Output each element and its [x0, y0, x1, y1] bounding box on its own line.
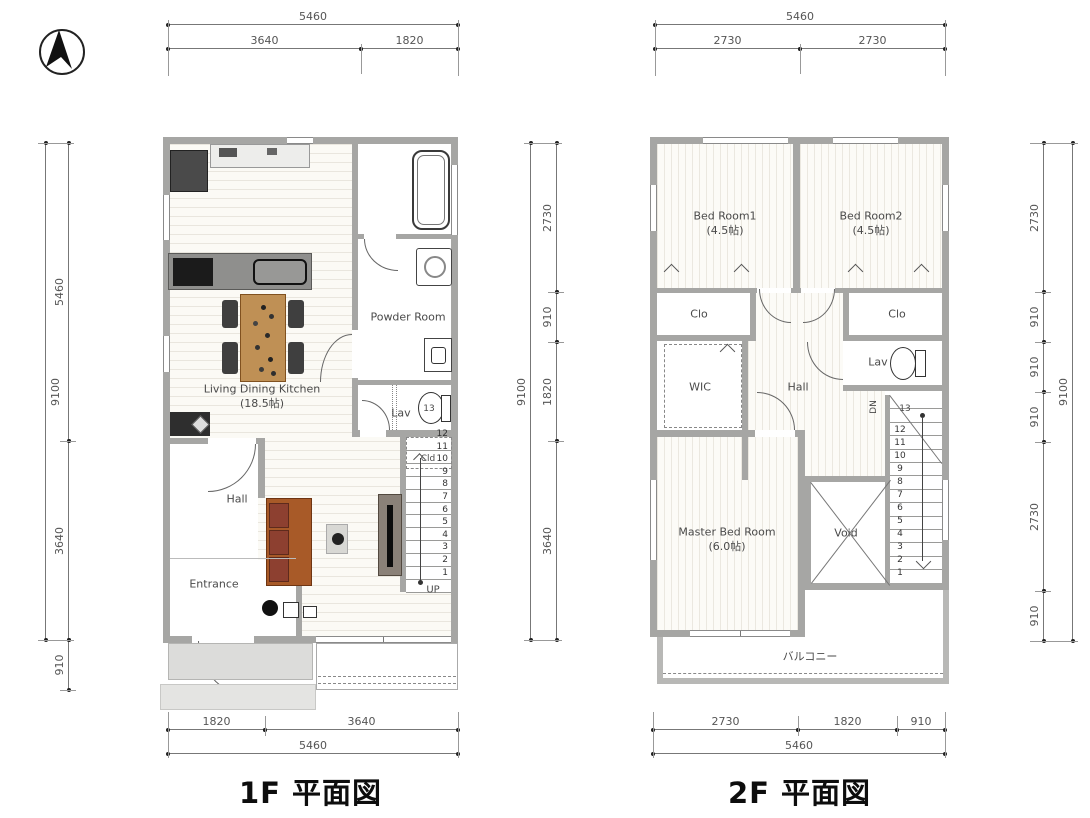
window	[833, 137, 898, 144]
dim-label: 9100	[49, 378, 62, 406]
dim-label: 5460	[786, 10, 814, 23]
shoe-box	[303, 606, 317, 618]
dim-f1-left-seg0: 5460	[68, 143, 69, 441]
stair-step-number: 7	[897, 489, 903, 502]
dim-label: 910	[911, 715, 932, 728]
dim-label: 2730	[859, 34, 887, 47]
dim-tick	[265, 716, 266, 736]
coffee-table-item	[332, 533, 344, 545]
dim-tick	[945, 712, 946, 758]
wall	[352, 380, 458, 385]
dim-tick	[168, 20, 169, 76]
wall	[805, 583, 949, 590]
dim-label: 910	[1028, 307, 1041, 328]
dining-chair	[222, 342, 238, 374]
dim-tick	[1035, 591, 1051, 592]
window	[287, 137, 313, 144]
dim-f2-right-seg3: 910	[1043, 392, 1044, 442]
window	[650, 185, 657, 231]
sofa	[266, 498, 312, 586]
stair-step-number: 3	[897, 541, 903, 554]
door-opening	[352, 330, 358, 378]
dim-tick	[38, 143, 74, 144]
window	[942, 185, 949, 231]
room-label-entrance: Entrance	[189, 578, 238, 591]
dim-f1-right-seg2: 1820	[556, 342, 557, 441]
room-label-powder: Powder Room	[370, 311, 445, 324]
kitchen-back-counter	[210, 144, 310, 168]
sliding-door-mid	[383, 637, 384, 642]
wall	[798, 437, 805, 637]
dim-f1-right-total: 9100	[530, 143, 531, 640]
dim-f1-left-seg2: 910	[68, 640, 69, 690]
room-label-master: Master Bed Room	[678, 526, 775, 539]
room-label-lav-2f: Lav	[868, 356, 887, 369]
stairs-dn-label: DN	[869, 400, 879, 414]
dim-tick	[458, 712, 459, 758]
stair-step-number: 9	[897, 463, 903, 476]
stair-step-number: 3	[442, 541, 448, 554]
dim-label: 5460	[785, 739, 813, 752]
toilet-tank	[915, 350, 926, 377]
dim-f1-right-seg0: 2730	[556, 143, 557, 292]
wall	[843, 293, 849, 341]
wall	[352, 144, 358, 434]
stair-step-number: 9	[442, 466, 448, 479]
sliding-door-mid	[740, 631, 741, 636]
dim-label: 1820	[541, 378, 554, 406]
sofa-cushion	[269, 557, 289, 582]
dim-label: 2730	[1028, 204, 1041, 232]
dim-f2-bottom-seg2: 910	[897, 729, 945, 730]
dim-f1-right-seg3: 3640	[556, 441, 557, 640]
dining-chair	[288, 300, 304, 328]
stair-step-number: 2	[442, 554, 448, 567]
dim-tick	[653, 712, 654, 758]
porch-step	[160, 684, 316, 710]
balcony-wall	[943, 590, 949, 684]
stair-direction-line	[420, 458, 421, 582]
entrance-porch	[168, 643, 313, 680]
dim-tick	[60, 690, 76, 691]
window	[650, 480, 657, 560]
closet-label: Cld	[421, 454, 436, 464]
wall	[258, 438, 265, 498]
dining-chair	[288, 342, 304, 374]
door-opening	[360, 430, 386, 437]
stair-step-number: 1	[897, 567, 903, 580]
dim-tick	[1035, 442, 1051, 443]
dim-label: 910	[1028, 407, 1041, 428]
dim-label: 910	[541, 307, 554, 328]
dim-tick	[38, 640, 74, 641]
dim-tick	[1035, 392, 1051, 393]
room-label-wic: WIC	[689, 381, 711, 394]
room-label-balcony: バルコニー	[783, 648, 838, 664]
stair-start-dot	[418, 580, 423, 585]
floor1-title: 1F 平面図	[163, 770, 458, 812]
stair-step-13: 13	[899, 404, 910, 414]
balcony-wall	[657, 678, 949, 684]
dim-label: 2730	[541, 204, 554, 232]
room-size-master: (6.0帖)	[708, 538, 745, 554]
dim-f1-left-seg1: 3640	[68, 441, 69, 640]
stair-step-numbers-1f: 121110987654321	[430, 428, 450, 579]
coffee-table	[326, 524, 348, 554]
stair-step-number: 11	[894, 437, 905, 450]
balcony-drain-line	[663, 673, 943, 674]
dim-f2-right-seg4: 2730	[1043, 442, 1044, 591]
dim-label: 910	[53, 655, 66, 676]
dim-tick	[945, 20, 946, 76]
dim-tick	[1030, 143, 1078, 144]
stair-step-13: 13	[423, 404, 434, 414]
dim-f1-bottom-seg1: 3640	[265, 729, 458, 730]
stair-step-number: 11	[437, 441, 448, 454]
window	[942, 480, 949, 540]
stair-step-number: 5	[442, 516, 448, 529]
eave-line	[318, 683, 456, 684]
tv-board	[378, 494, 402, 576]
dim-tick	[800, 44, 801, 74]
window	[163, 336, 170, 372]
dim-tick	[655, 20, 656, 76]
dim-f2-top-seg1: 2730	[800, 48, 945, 49]
wall	[843, 335, 949, 341]
floor2-title: 2F 平面図	[650, 770, 949, 812]
stair-step-number: 4	[442, 529, 448, 542]
room-size-ldk: (18.5帖)	[240, 395, 284, 411]
dim-label: 1820	[396, 34, 424, 47]
wall	[742, 341, 748, 480]
room-label-void: Void	[834, 527, 857, 540]
kitchen-island-counter	[168, 253, 312, 290]
vanity-sink	[424, 338, 452, 372]
room-label-hall-2f: Hall	[787, 381, 808, 394]
stair-step-number: 8	[442, 478, 448, 491]
window	[451, 165, 458, 235]
stair-step-number: 8	[897, 476, 903, 489]
room-label-clo-left: Clo	[690, 308, 707, 321]
eave-line	[318, 676, 456, 677]
dim-tick	[1030, 641, 1078, 642]
dim-f1-top-total: 5460	[168, 24, 458, 25]
stair-step-number: 12	[894, 424, 905, 437]
stair-step-number: 5	[897, 515, 903, 528]
dim-tick	[524, 640, 562, 641]
room-label-hall: Hall	[226, 493, 247, 506]
dim-tick	[798, 716, 799, 736]
dim-tick	[1035, 342, 1051, 343]
dim-label: 9100	[515, 378, 528, 406]
floor-plan-sheet: 5460 3640 1820 1820 3640 5460 9100 5460 …	[0, 0, 1090, 818]
wall	[793, 144, 800, 292]
dim-label: 9100	[1057, 378, 1070, 406]
window	[703, 137, 788, 144]
stairs-up-label: UP	[426, 585, 439, 596]
dim-label: 2730	[712, 715, 740, 728]
desk	[170, 412, 210, 436]
room-size-bed1: (4.5帖)	[706, 222, 743, 238]
dim-f2-bottom-total: 5460	[653, 753, 945, 754]
stair-step-number: 10	[437, 453, 448, 466]
dim-f2-right-seg2: 910	[1043, 342, 1044, 392]
dim-label: 1820	[203, 715, 231, 728]
entrance-step-line	[170, 558, 296, 559]
dim-tick	[1035, 292, 1051, 293]
north-arrow-icon	[34, 24, 90, 80]
tableware	[261, 305, 266, 310]
dim-label: 5460	[53, 278, 66, 306]
dim-tick	[60, 441, 76, 442]
shoe-box	[283, 602, 299, 618]
bathtub	[412, 150, 450, 230]
dim-label: 910	[1028, 606, 1041, 627]
dim-f1-bottom-total: 5460	[168, 753, 458, 754]
toilet-tank	[441, 395, 451, 422]
stair-step-number: 12	[437, 428, 448, 441]
dim-tick	[548, 292, 564, 293]
kitchen-sink	[253, 259, 307, 285]
room-label-bed2: Bed Room2	[839, 210, 902, 223]
balcony-wall	[657, 637, 663, 684]
dim-label: 3640	[251, 34, 279, 47]
dim-tick	[548, 441, 564, 442]
sofa-cushion	[269, 503, 289, 528]
toilet	[890, 347, 916, 380]
wall	[843, 385, 949, 391]
stair-start-dot	[920, 413, 925, 418]
refrigerator	[170, 150, 208, 192]
stair-step-number: 6	[897, 502, 903, 515]
bathtub-inner	[417, 155, 445, 225]
dim-label: 2730	[1028, 503, 1041, 531]
stair-step-numbers-2f: 121110987654321	[888, 424, 912, 580]
sofa-cushion	[269, 530, 289, 555]
dim-f2-right-seg0: 2730	[1043, 143, 1044, 292]
dim-tick	[168, 712, 169, 758]
dim-f2-right-seg5: 910	[1043, 591, 1044, 641]
dim-f2-right-total: 9100	[1072, 143, 1073, 641]
dim-f1-top-seg1: 1820	[361, 48, 458, 49]
dim-label: 910	[1028, 357, 1041, 378]
room-label-bed1: Bed Room1	[693, 210, 756, 223]
dim-label: 5460	[299, 739, 327, 752]
desk-chair	[191, 415, 209, 433]
dim-f1-right-seg1: 910	[556, 292, 557, 342]
room-label-ldk: Living Dining Kitchen	[204, 383, 321, 396]
stair-direction-line	[922, 418, 923, 561]
wall	[805, 476, 890, 482]
dim-tick	[897, 716, 898, 736]
dim-label: 3640	[53, 527, 66, 555]
stair-step-number: 2	[897, 554, 903, 567]
dim-f1-top-seg0: 3640	[168, 48, 361, 49]
dim-f2-top-total: 5460	[655, 24, 945, 25]
dim-label: 2730	[714, 34, 742, 47]
dim-f2-bottom-seg0: 2730	[653, 729, 798, 730]
dim-tick	[361, 44, 362, 74]
dining-chair	[222, 300, 238, 328]
wall	[805, 476, 811, 585]
wall	[750, 293, 756, 341]
stair-step-number: 4	[897, 528, 903, 541]
dim-label: 3640	[348, 715, 376, 728]
dim-tick	[524, 143, 562, 144]
plant-pot	[262, 600, 278, 616]
window	[163, 195, 170, 240]
dim-f1-bottom-seg0: 1820	[168, 729, 265, 730]
dim-f2-right-seg1: 910	[1043, 292, 1044, 342]
counter-appliance	[219, 148, 237, 157]
dim-label: 1820	[834, 715, 862, 728]
stair-step-number: 6	[442, 504, 448, 517]
washing-machine	[416, 248, 452, 286]
dining-table	[240, 294, 286, 382]
room-size-bed2: (4.5帖)	[852, 222, 889, 238]
stair-tread-line	[890, 422, 942, 423]
cooktop	[173, 258, 213, 286]
washing-machine-drum	[424, 256, 446, 278]
tv-screen	[387, 505, 393, 567]
dim-tick	[458, 20, 459, 76]
counter-appliance	[267, 148, 277, 155]
vanity-bowl	[431, 347, 446, 364]
door-opening	[755, 430, 795, 437]
dim-f2-top-seg0: 2730	[655, 48, 800, 49]
stair-step-number: 1	[442, 567, 448, 580]
wall	[650, 137, 949, 144]
dim-tick	[548, 342, 564, 343]
stair-tread-line	[890, 408, 942, 409]
stair-step-number: 10	[894, 450, 905, 463]
dim-label: 5460	[299, 10, 327, 23]
stair-step-number: 7	[442, 491, 448, 504]
dim-f2-bottom-seg1: 1820	[798, 729, 897, 730]
dim-f1-left-total: 9100	[45, 143, 46, 640]
dim-label: 3640	[541, 527, 554, 555]
room-label-lav: Lav	[391, 407, 410, 420]
room-label-clo-right: Clo	[888, 308, 905, 321]
